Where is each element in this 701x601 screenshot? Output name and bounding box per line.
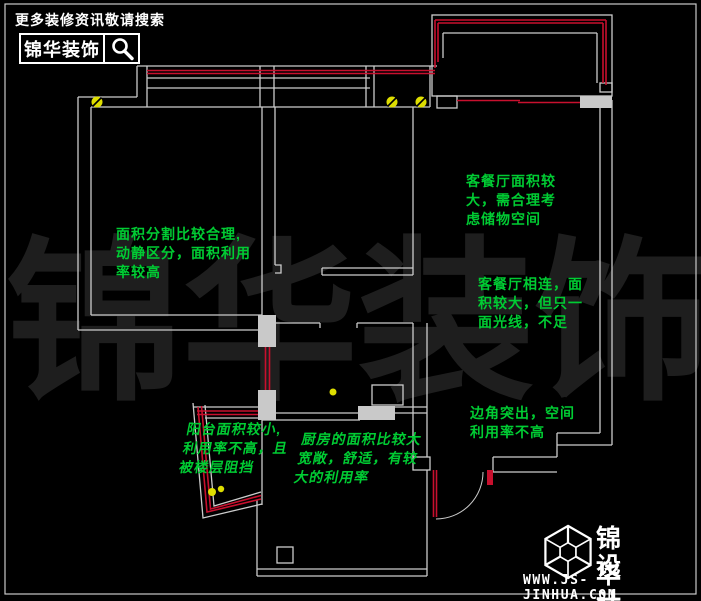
brand-search-box: 锦华装饰: [19, 33, 140, 64]
wall-piers: [258, 96, 612, 420]
entry-door-leaf: [434, 470, 437, 517]
note-corner: 边角突出，空间 利用率不高: [470, 404, 575, 442]
balcony-top-right-window: [435, 20, 606, 85]
lamp-symbol-icon: [218, 486, 224, 492]
top-window: [147, 71, 435, 74]
note-kitchen: 厨房的面积比较大 宽敞，舒适，有较 大的利用率: [292, 430, 423, 487]
note-lighting: 客餐厅相连，面 积较大，但只一 面光线，不足: [478, 275, 583, 332]
entry-door-arc: [436, 472, 483, 519]
lamp-symbol-icon: [208, 488, 216, 496]
floorplan-page: 锦 华 装 饰: [0, 0, 701, 601]
kitchen-side-window: [266, 347, 270, 390]
search-tagline: 更多装修资讯敬请搜索: [15, 10, 165, 30]
floor-plan-drawing: [0, 0, 701, 601]
brand-name: 锦华装饰: [21, 35, 105, 62]
lamp-symbol-icon: [330, 389, 337, 396]
image-border: [5, 4, 696, 594]
outlet-symbol-icon: [387, 97, 398, 108]
balcony-sliding-door: [457, 101, 580, 103]
search-icon: [105, 35, 138, 62]
footer-website-url: WWW.JS-JINHUA.COM: [523, 573, 617, 601]
note-storage-space: 客餐厅面积较 大，需合理考 虑储物空间: [466, 172, 556, 229]
note-bedroom-area: 面积分割比较合理, 动静区分，面积利用 率较高: [116, 225, 251, 282]
outlet-symbol-icon: [92, 97, 103, 108]
outlet-symbol-icon: [416, 97, 427, 108]
entry-door-jamb: [487, 470, 493, 485]
note-balcony: 阳台面积较小, 利用率不高，且 被楼层阻挡: [177, 420, 293, 477]
